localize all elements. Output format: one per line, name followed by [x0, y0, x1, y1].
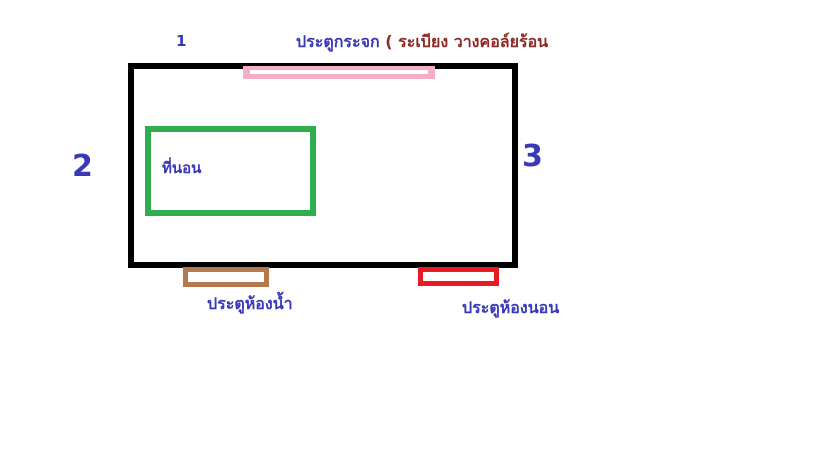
- glass-door-label: ประตูกระจก ( ระเบียง วางคอล์ยร้อน: [296, 30, 548, 55]
- marker-1: 1: [176, 32, 186, 50]
- bathroom-door-label: ประตูห้องน้ำ: [207, 292, 293, 317]
- glass-door-stripe: [250, 70, 428, 74]
- bed-label: ที่นอน: [162, 156, 201, 180]
- bedroom-door-label: ประตูห้องนอน: [462, 296, 559, 321]
- bedroom-door-rectangle: [418, 267, 499, 286]
- glass-door-note-text: ( ระเบียง วางคอล์ยร้อน: [385, 32, 548, 51]
- glass-door-label-text: ประตูกระจก: [296, 32, 380, 51]
- bathroom-door-rectangle: [183, 267, 269, 287]
- marker-3: 3: [522, 139, 543, 174]
- marker-2: 2: [72, 149, 93, 184]
- floorplan-canvas: 1 2 3 ประตูกระจก ( ระเบียง วางคอล์ยร้อน …: [0, 0, 819, 460]
- glass-door-bar: [243, 66, 435, 79]
